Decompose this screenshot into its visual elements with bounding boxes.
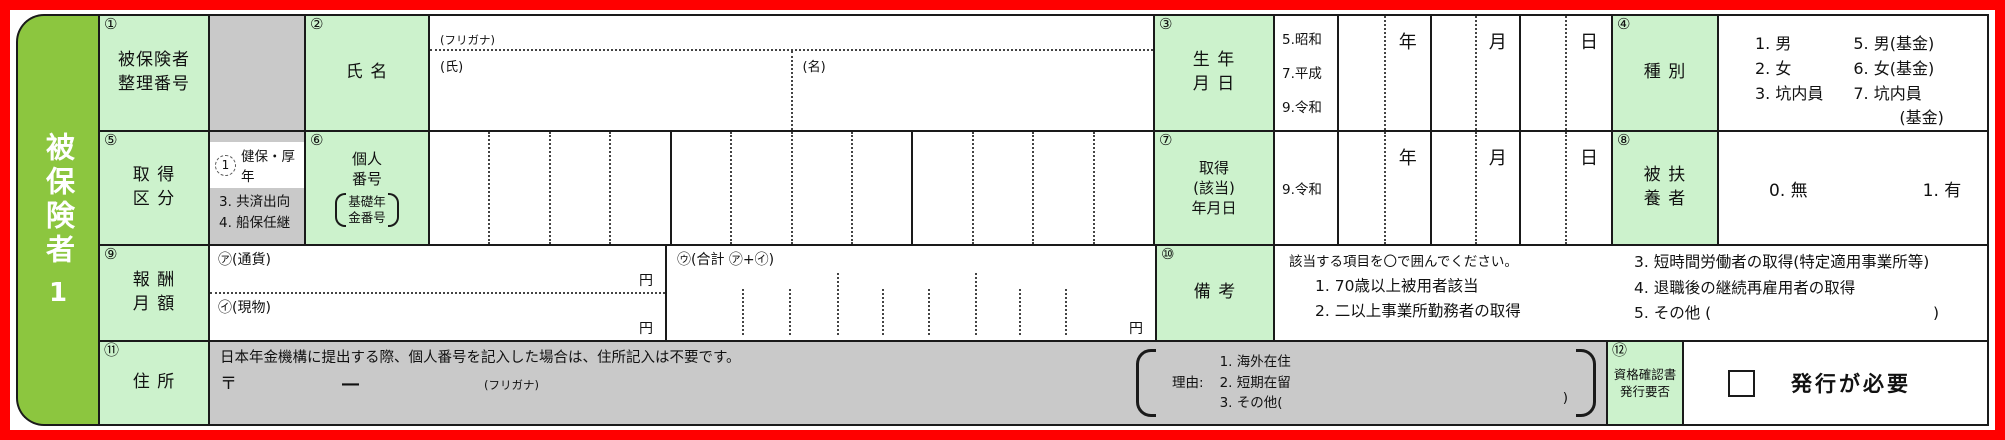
acquisition-day-cell: 日	[1521, 132, 1613, 244]
personal-number-digit[interactable]	[551, 132, 611, 244]
dependents-label-cell: ⑧ 被 扶 養 者	[1613, 132, 1719, 244]
acquisition-category-label-cell: ⑤ 取 得 区 分	[100, 132, 210, 244]
currency-caption: ㋐(通貨)	[218, 249, 271, 269]
type-label: 種 別	[1644, 61, 1686, 85]
acquisition-category-options: 1 健保・厚年 3. 共済出向 4. 船保任継	[210, 132, 306, 244]
acquisition-date-label-line3: 年月日	[1191, 198, 1236, 218]
birth-date-label-line1: 生 年	[1193, 49, 1235, 73]
address-furigana-caption: (フリガナ)	[484, 377, 539, 393]
family-name-input[interactable]: (氏)	[430, 51, 791, 130]
acquisition-category-label-line1: 取 得	[133, 164, 175, 188]
reason-option-short-stay[interactable]: 2. 短期在留	[1220, 373, 1291, 394]
personal-number-label-line2: 番号	[352, 169, 382, 189]
personal-number-digit[interactable]	[974, 132, 1034, 244]
acquisition-option-kenpo-label: 健保・厚年	[241, 145, 302, 185]
section-title: 被保険者	[44, 132, 73, 268]
field-number-6: ⑥	[310, 133, 323, 148]
type-option-male-fund[interactable]: 5. 男(基金)	[1853, 32, 1944, 57]
personal-number-digit[interactable]	[1095, 132, 1153, 244]
field-number-7: ⑦	[1159, 133, 1172, 148]
remarks-option-3[interactable]: 3. 短時間労働者の取得(特定適用事業所等)	[1634, 250, 1979, 276]
address-label: 住 所	[133, 371, 175, 395]
remuneration-label-line2: 月 額	[133, 293, 175, 317]
remuneration-label-line1: 報 酬	[133, 269, 175, 293]
dependents-label-line2: 養 者	[1644, 188, 1686, 212]
acquisition-category-label-line2: 区 分	[133, 188, 175, 212]
field-number-8: ⑧	[1617, 133, 1630, 148]
furigana-caption: (フリガナ)	[440, 32, 495, 48]
birth-year-input[interactable]	[1339, 16, 1386, 130]
insured-number-label-line2: 整理番号	[118, 73, 190, 97]
inkind-caption: ㋑(現物)	[218, 297, 271, 317]
remarks-options-cell: 該当する項目を〇で囲んでください。 1. 70歳以上被用者該当 2. 二以上事業…	[1275, 246, 1987, 340]
acquisition-option-kenpo[interactable]: 1 健保・厚年	[210, 142, 304, 188]
birth-day-input[interactable]	[1521, 16, 1567, 130]
type-option-male[interactable]: 1. 男	[1755, 32, 1823, 57]
field-number-12: ⑫	[1612, 343, 1627, 358]
address-label-cell: ⑪ 住 所	[100, 342, 210, 424]
row-3: ⑨ 報 酬 月 額 ㋐(通貨) 円 ㋑(現物) 円 ㋒(合計 ㋐+㋑) 円	[100, 246, 1987, 342]
field-number-3: ③	[1159, 17, 1172, 32]
issue-required-label: 発行が必要	[1791, 368, 1911, 398]
reason-label: 理由:	[1172, 373, 1204, 394]
digit-separator-tall	[837, 273, 839, 335]
acquisition-date-label-line1: 取得	[1199, 158, 1229, 178]
field-number-9: ⑨	[104, 247, 117, 262]
personal-number-digit[interactable]	[490, 132, 550, 244]
given-name-input[interactable]: (名)	[791, 51, 1154, 130]
acquisition-month-input[interactable]	[1432, 132, 1477, 244]
personal-number-digit[interactable]	[732, 132, 792, 244]
remarks-option-1[interactable]: 1. 70歳以上被用者該当	[1289, 274, 1634, 300]
bracket-right-icon	[388, 193, 399, 228]
acquisition-month-unit: 月	[1477, 132, 1520, 244]
personal-number-label-cell: ⑥ 個人 番号 基礎年 金番号	[306, 132, 430, 244]
birth-era-option-showa[interactable]: 5.昭和	[1282, 28, 1335, 48]
name-label-cell: ② 氏 名	[306, 16, 430, 130]
acquisition-year-input[interactable]	[1339, 132, 1386, 244]
insured-person-form-table: ① 被保険者 整理番号 ② 氏 名 (フリガナ) (氏) (名) ③ 生	[98, 14, 1989, 426]
digit-separator	[882, 289, 884, 335]
acquisition-date-label-cell: ⑦ 取得 (該当) 年月日	[1155, 132, 1275, 244]
personal-number-label-line1: 個人	[352, 149, 382, 169]
field-number-10: ⑩	[1161, 247, 1174, 262]
type-option-female[interactable]: 2. 女	[1755, 57, 1823, 82]
certificate-checkbox-cell: 発行が必要	[1684, 342, 1987, 424]
acquisition-option-senpo[interactable]: 4. 船保任継	[210, 211, 304, 231]
type-options-cell: 1. 男 2. 女 3. 坑内員 5. 男(基金) 6. 女(基金) 7. 坑内…	[1719, 16, 1987, 130]
field-number-4: ④	[1617, 17, 1630, 32]
bracket-left-icon	[335, 193, 346, 228]
personal-number-input	[430, 132, 1155, 244]
dependents-options-cell: 0. 無 1. 有	[1719, 132, 1987, 244]
digit-separator-tall	[975, 273, 977, 335]
personal-number-digit[interactable]	[1034, 132, 1094, 244]
reason-close-paren: )	[1563, 388, 1572, 417]
total-caption: ㋒(合計 ㋐+㋑)	[677, 249, 774, 269]
remarks-option-5-label: 5. その他 (	[1634, 301, 1711, 327]
total-yen-unit: 円	[1129, 318, 1143, 338]
birth-era-option-reiwa[interactable]: 9.令和	[1282, 96, 1335, 116]
acquisition-year-unit: 年	[1386, 132, 1431, 244]
remarks-instruction: 該当する項目を〇で囲んでください。	[1289, 250, 1634, 274]
acquisition-option-kyosai[interactable]: 3. 共済出向	[210, 190, 304, 210]
dependents-option-none[interactable]: 0. 無	[1769, 176, 1808, 201]
remuneration-label-cell: ⑨ 報 酬 月 額	[100, 246, 210, 340]
remarks-label: 備 考	[1194, 281, 1236, 305]
remarks-option-5-close-paren: )	[1933, 301, 1979, 327]
acquisition-day-unit: 日	[1567, 132, 1611, 244]
insured-number-label-cell: ① 被保険者 整理番号	[100, 16, 210, 130]
birth-day-unit: 日	[1567, 16, 1611, 130]
basic-pension-label-line2: 金番号	[348, 210, 386, 226]
address-input[interactable]: 日本年金機構に提出する際、個人番号を記入した場合は、住所記入は不要です。 〒 ―…	[210, 342, 1608, 424]
certificate-label-cell: ⑫ 資格確認書 発行要否	[1608, 342, 1684, 424]
family-name-caption: (氏)	[440, 60, 463, 75]
issue-required-checkbox[interactable]	[1728, 370, 1755, 397]
type-option-female-fund[interactable]: 6. 女(基金)	[1853, 57, 1944, 82]
acquisition-month-cell: 月	[1432, 132, 1521, 244]
personal-number-digit[interactable]	[853, 132, 913, 244]
certificate-label-line1: 資格確認書	[1614, 366, 1677, 384]
section-number: 1	[49, 278, 67, 308]
row-2: ⑤ 取 得 区 分 1 健保・厚年 3. 共済出向 4. 船保任継 ⑥ 個人 番…	[100, 132, 1987, 246]
dependents-option-yes[interactable]: 1. 有	[1923, 176, 1962, 201]
reason-option-overseas[interactable]: 1. 海外在住	[1220, 352, 1291, 373]
address-reason-group: 理由: 1. 海外在住 2. 短期在留 3. その他( )	[1136, 349, 1596, 417]
type-option-miner[interactable]: 3. 坑内員	[1755, 82, 1823, 107]
digit-separator	[1065, 289, 1067, 335]
insured-number-label-line1: 被保険者	[118, 49, 190, 73]
digit-separator	[789, 289, 791, 335]
birth-era-option-heisei[interactable]: 7.平成	[1282, 62, 1335, 82]
field-number-5: ⑤	[104, 133, 117, 148]
name-field-cell: (フリガナ) (氏) (名)	[430, 16, 1155, 130]
reason-option-other[interactable]: 3. その他(	[1220, 393, 1291, 414]
insured-person-section-tab: 被保険者 1	[16, 14, 98, 426]
currency-amount-input[interactable]: ㋐(通貨) 円	[210, 246, 665, 294]
acquisition-year-cell: 年	[1339, 132, 1432, 244]
personal-number-digit[interactable]	[913, 132, 973, 244]
dashed-circle-icon: 1	[215, 155, 236, 176]
inkind-yen-unit: 円	[639, 318, 653, 338]
birth-era-options: 5.昭和 7.平成 9.令和	[1275, 16, 1339, 130]
digit-separator	[742, 289, 744, 335]
basic-pension-number-bracket: 基礎年 金番号	[335, 193, 399, 228]
form-frame: 被保険者 1 ① 被保険者 整理番号 ② 氏 名 (フリガナ) (氏) (名)	[0, 0, 2005, 440]
birth-year-unit: 年	[1386, 16, 1431, 130]
digit-separator	[928, 289, 930, 335]
personal-number-digit[interactable]	[611, 132, 671, 244]
row-4: ⑪ 住 所 日本年金機構に提出する際、個人番号を記入した場合は、住所記入は不要で…	[100, 342, 1987, 424]
currency-yen-unit: 円	[639, 270, 653, 290]
digit-separator	[1019, 289, 1021, 335]
acquisition-date-label-line2: (該当)	[1193, 178, 1235, 198]
birth-date-label-cell: ③ 生 年 月 日	[1155, 16, 1275, 130]
given-name-caption: (名)	[803, 60, 826, 75]
acquisition-day-input[interactable]	[1521, 132, 1567, 244]
remarks-option-5[interactable]: 5. その他 ( )	[1634, 301, 1979, 327]
type-label-cell: ④ 種 別	[1613, 16, 1719, 130]
remuneration-amount-cell: ㋐(通貨) 円 ㋑(現物) 円	[210, 246, 667, 340]
type-option-miner-fund[interactable]: 7. 坑内員	[1853, 82, 1944, 107]
big-bracket-right-icon	[1576, 349, 1596, 417]
dependents-label-line1: 被 扶	[1644, 164, 1686, 188]
basic-pension-label-line1: 基礎年	[348, 194, 386, 210]
postal-dash: ―	[342, 374, 359, 394]
birth-date-label-line2: 月 日	[1193, 73, 1235, 97]
field-number-2: ②	[310, 17, 323, 32]
acquisition-era-option: 9.令和	[1275, 132, 1339, 244]
birth-year-cell: 年	[1339, 16, 1432, 130]
birth-month-cell: 月	[1432, 16, 1521, 130]
field-number-11: ⑪	[104, 343, 119, 358]
remarks-label-cell: ⑩ 備 考	[1157, 246, 1275, 340]
postal-mark: 〒	[220, 369, 237, 394]
field-number-1: ①	[104, 17, 117, 32]
total-amount-input[interactable]: ㋒(合計 ㋐+㋑) 円	[667, 246, 1157, 340]
remarks-option-4[interactable]: 4. 退職後の継続再雇用者の取得	[1634, 276, 1979, 302]
personal-number-digit[interactable]	[793, 132, 853, 244]
type-option-miner-fund-wrap: (基金)	[1853, 106, 1944, 131]
personal-number-digit[interactable]	[672, 132, 732, 244]
name-furigana-input[interactable]: (フリガナ)	[430, 16, 1153, 51]
birth-month-unit: 月	[1477, 16, 1520, 130]
inkind-amount-input[interactable]: ㋑(現物) 円	[210, 294, 665, 340]
birth-month-input[interactable]	[1432, 16, 1477, 130]
birth-day-cell: 日	[1521, 16, 1613, 130]
big-bracket-left-icon	[1136, 349, 1156, 417]
acquisition-era-reiwa[interactable]: 9.令和	[1282, 178, 1322, 198]
personal-number-digit[interactable]	[430, 132, 490, 244]
remarks-option-2[interactable]: 2. 二以上事業所勤務者の取得	[1289, 299, 1634, 325]
row-1: ① 被保険者 整理番号 ② 氏 名 (フリガナ) (氏) (名) ③ 生	[100, 16, 1987, 132]
name-label: 氏 名	[346, 61, 388, 85]
insured-number-shaded-cell	[210, 16, 306, 130]
certificate-label-line2: 発行要否	[1620, 383, 1670, 401]
